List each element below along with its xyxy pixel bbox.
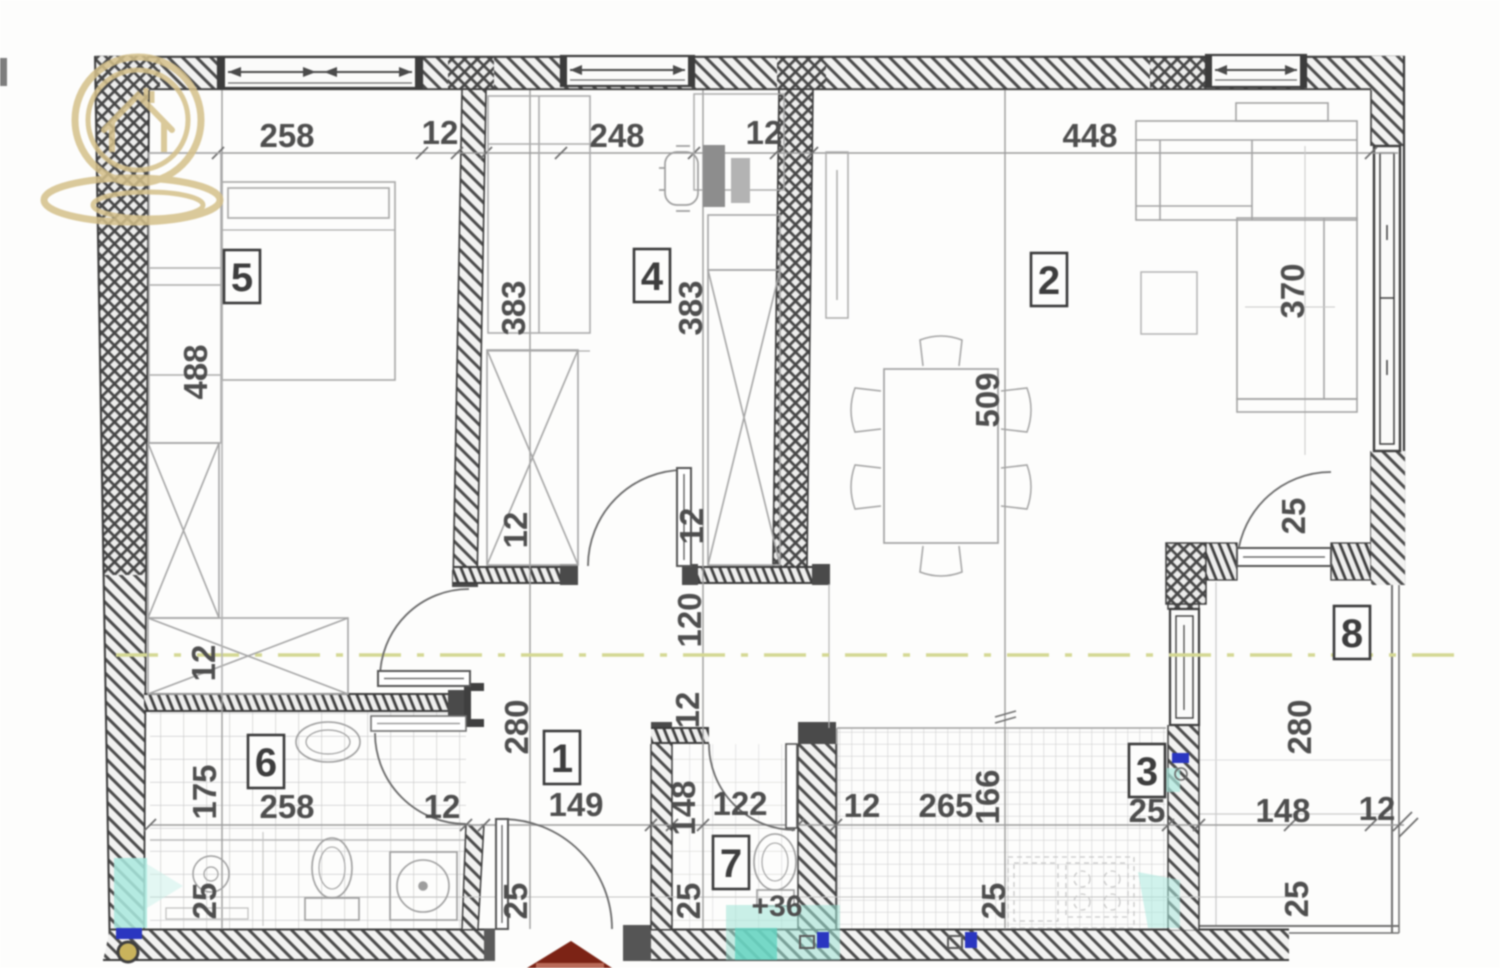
svg-text:25: 25 xyxy=(670,883,707,920)
svg-text:7: 7 xyxy=(720,842,742,886)
svg-text:383: 383 xyxy=(495,280,532,335)
svg-text:122: 122 xyxy=(712,785,767,822)
svg-text:3: 3 xyxy=(1136,750,1158,794)
svg-text:248: 248 xyxy=(589,117,644,154)
svg-text:12: 12 xyxy=(185,645,222,682)
svg-text:25: 25 xyxy=(186,883,223,920)
svg-text:12: 12 xyxy=(422,114,459,151)
svg-text:25: 25 xyxy=(1275,498,1312,535)
svg-text:2: 2 xyxy=(1038,259,1060,303)
svg-text:25: 25 xyxy=(975,883,1012,920)
svg-text:12: 12 xyxy=(669,692,706,729)
svg-text:25: 25 xyxy=(497,883,534,920)
svg-text:1: 1 xyxy=(551,737,573,781)
svg-text:5: 5 xyxy=(231,256,253,300)
svg-text:265: 265 xyxy=(918,787,973,824)
svg-text:12: 12 xyxy=(1359,790,1396,827)
svg-text:383: 383 xyxy=(672,280,709,335)
svg-text:25: 25 xyxy=(1278,881,1315,918)
svg-text:258: 258 xyxy=(259,117,314,154)
svg-text:12: 12 xyxy=(424,788,461,825)
svg-text:448: 448 xyxy=(1062,117,1117,154)
svg-text:258: 258 xyxy=(259,788,314,825)
svg-text:488: 488 xyxy=(177,344,214,399)
svg-text:149: 149 xyxy=(548,786,603,823)
svg-text:4: 4 xyxy=(641,255,664,299)
svg-text:370: 370 xyxy=(1274,263,1311,318)
svg-text:280: 280 xyxy=(1281,699,1318,754)
svg-text:12: 12 xyxy=(844,787,881,824)
svg-text:509: 509 xyxy=(969,372,1006,427)
svg-text:12: 12 xyxy=(497,512,534,549)
svg-text:148: 148 xyxy=(1255,792,1310,829)
svg-text:+36: +36 xyxy=(752,890,803,923)
svg-text:12: 12 xyxy=(746,114,783,151)
svg-text:148: 148 xyxy=(665,780,702,835)
svg-text:12: 12 xyxy=(673,508,710,545)
svg-text:166: 166 xyxy=(969,769,1006,824)
svg-text:175: 175 xyxy=(186,764,223,819)
svg-text:6: 6 xyxy=(255,741,277,785)
svg-text:120: 120 xyxy=(671,592,708,647)
svg-text:280: 280 xyxy=(498,699,535,754)
svg-text:8: 8 xyxy=(1341,612,1363,656)
